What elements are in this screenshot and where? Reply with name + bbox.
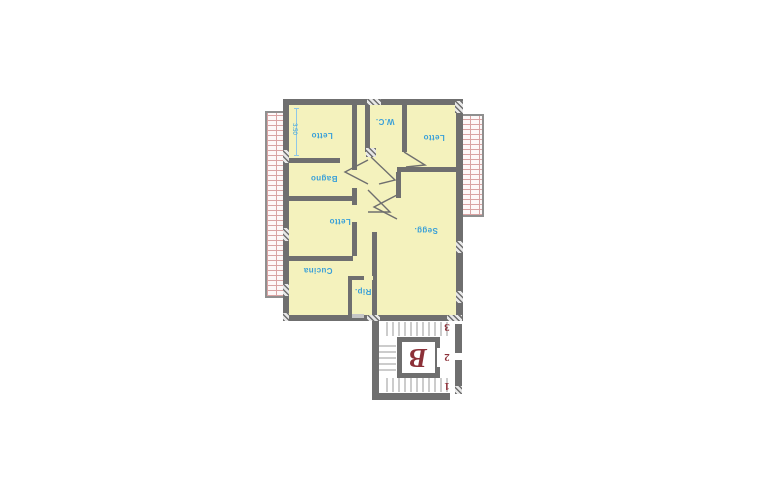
room-label-letto-middle: Letto	[318, 217, 362, 226]
floor-number-2: 2	[440, 351, 454, 363]
wall-letto-tl-right	[352, 104, 357, 162]
room-label-soggiorno: Segg.	[404, 226, 448, 235]
room-label-wc: W.C.	[372, 117, 398, 126]
wall-wc-left	[365, 104, 370, 152]
wall-stair-left	[372, 321, 379, 400]
door-gap-letto-tl	[340, 158, 352, 163]
wall-letto-tr-bottom	[397, 167, 456, 172]
wall-outer-right	[456, 99, 463, 321]
door-gap-bagno	[352, 170, 357, 188]
floor-number-3: 3	[440, 321, 454, 333]
room-label-cucina: Cucina	[296, 266, 340, 275]
hatch-top-wall	[367, 99, 381, 105]
wall-stair-right-upper	[455, 324, 462, 353]
floor-number-1: 1	[440, 380, 454, 392]
room-label-letto-top-right: Letto	[412, 133, 456, 142]
hatch-wc-pier	[366, 148, 376, 157]
wall-stair-bottom	[372, 393, 450, 400]
wall-soggiorno-left-upper	[396, 172, 401, 198]
wall-bagno-bottom	[289, 196, 357, 201]
door-gap-rip	[364, 276, 373, 280]
hatch-left-window-1	[283, 150, 289, 163]
dimension-tick-bottom	[294, 155, 299, 156]
wall-cucina-top	[289, 256, 353, 261]
room-label-rip: Rip.	[350, 287, 376, 296]
hatch-left-window-2	[283, 228, 289, 241]
hatch-top-right-corner	[455, 101, 463, 113]
room-label-letto-top-left: Letto	[300, 131, 344, 140]
hatch-right-window-1	[456, 241, 463, 253]
hatch-bottom-left-corner	[283, 313, 289, 321]
entrance-threshold	[352, 314, 364, 318]
hatch-right-window-2	[456, 291, 463, 303]
wall-stair-right-lower	[455, 360, 462, 386]
hatch-left-window-3	[283, 284, 289, 296]
unit-letter: B	[409, 344, 427, 371]
dimension-tick-top	[294, 108, 299, 109]
dimension-label: 3.50	[291, 123, 297, 135]
room-label-bagno: Bagno	[302, 174, 346, 183]
stair-core-box: B	[397, 337, 440, 378]
wall-wc-right	[402, 104, 407, 152]
floor-plan-canvas: B 3 2 1 3.50 Letto W.C. Letto Bagno Lett…	[0, 0, 764, 492]
wall-soggiorno-left-lower	[372, 232, 377, 315]
